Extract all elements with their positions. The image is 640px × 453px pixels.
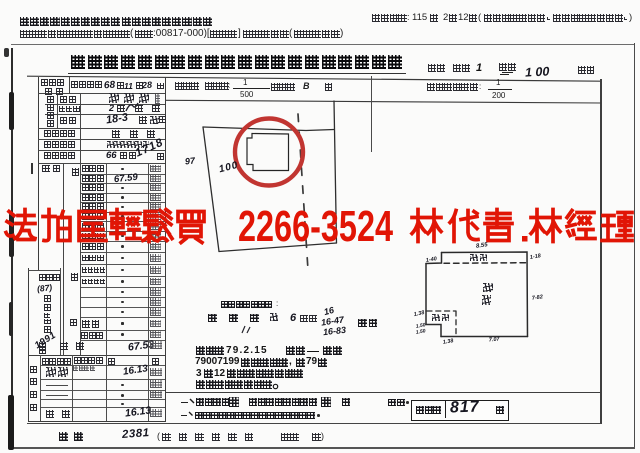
svg-text:2266-3524: 2266-3524 [238,202,393,251]
